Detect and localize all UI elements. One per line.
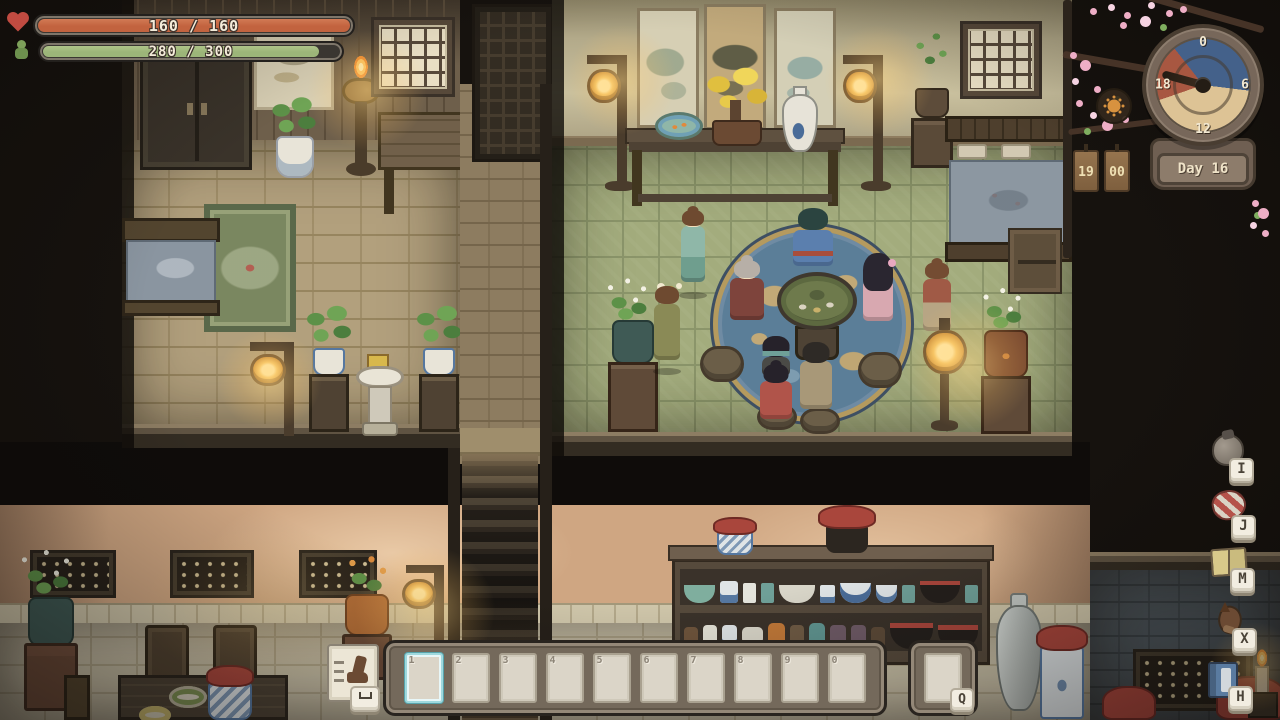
lantern <box>843 69 877 103</box>
plate <box>169 686 207 708</box>
covered-jar[interactable] <box>206 665 254 720</box>
hotbar-slot[interactable]: 4 <box>546 653 584 703</box>
npc-girl[interactable] <box>855 253 901 345</box>
dining-chair[interactable] <box>64 675 90 720</box>
blossoms <box>1070 52 1077 59</box>
journal-key[interactable]: J <box>1231 515 1256 540</box>
stairwell <box>448 0 552 720</box>
dash-key[interactable] <box>350 686 380 712</box>
pottery <box>779 585 815 603</box>
npc-standing[interactable] <box>678 210 708 296</box>
wardrobe[interactable] <box>140 52 252 170</box>
hotbar-slot[interactable]: 5 <box>593 653 631 703</box>
boot-icon <box>345 656 369 686</box>
bonsai <box>688 58 788 154</box>
pottery <box>965 585 978 603</box>
hotbar-slot[interactable]: 6 <box>640 653 678 703</box>
dial-0: 0 <box>1199 35 1207 50</box>
hotbar-slot[interactable]: 7 <box>687 653 725 703</box>
stamina-value: 280 / 300 <box>40 43 342 60</box>
sun-icon <box>1108 100 1121 113</box>
stool[interactable] <box>858 352 902 388</box>
inventory-key[interactable]: I <box>1229 458 1254 483</box>
hotbar: 1 2 3 4 5 6 7 8 9 0 <box>383 640 887 716</box>
pottery <box>820 585 835 603</box>
potted-palm <box>406 296 460 436</box>
pottery <box>902 585 915 603</box>
wall-vent <box>173 553 251 595</box>
wall-lamp <box>398 565 450 649</box>
lantern <box>250 354 286 386</box>
hotbar-slot[interactable]: 8 <box>734 653 772 703</box>
stair-landing <box>460 428 540 456</box>
potted-bamboo <box>262 88 326 180</box>
stool[interactable] <box>700 346 744 382</box>
flower-stand <box>972 282 1038 434</box>
right-room <box>552 0 1072 456</box>
game-screen: 160 / 160 280 / 300 0 6 12 18 Day 16 19 … <box>0 0 1280 720</box>
pottery <box>840 583 871 603</box>
day-counter: Day 16 <box>1157 153 1249 185</box>
minute-tag: 00 <box>1104 150 1130 192</box>
game-clock: 0 6 12 18 <box>1142 24 1264 146</box>
hotbar-slot[interactable]: 9 <box>781 653 819 703</box>
round-table[interactable] <box>777 272 857 330</box>
covered-jar <box>713 517 757 555</box>
npc-standing[interactable] <box>650 286 684 372</box>
lantern-stand <box>841 55 889 193</box>
pottery <box>876 585 898 603</box>
lantern <box>402 579 436 609</box>
hotbar-slot[interactable]: 1 <box>405 653 443 703</box>
time-phase-badge <box>1096 88 1132 124</box>
sprout-icon <box>13 40 29 60</box>
handbook-key[interactable]: H <box>1228 686 1253 711</box>
health-value: 160 / 160 <box>35 16 353 35</box>
hour-tag: 19 <box>1073 150 1099 192</box>
basin-stand <box>352 360 408 438</box>
dial-6: 6 <box>1241 78 1249 93</box>
bed[interactable] <box>122 218 220 316</box>
spacebar-glyph <box>359 692 372 699</box>
dining-table[interactable] <box>118 675 288 720</box>
hotbar-slot[interactable]: 2 <box>452 653 490 703</box>
dial-12: 12 <box>1195 122 1211 137</box>
heart-icon <box>10 15 27 32</box>
quick-slot-key[interactable]: Q <box>950 688 974 712</box>
floor-lantern <box>920 318 972 432</box>
plate <box>139 706 171 720</box>
hotbar-slot[interactable]: 3 <box>499 653 537 703</box>
pottery <box>743 583 756 603</box>
hotbar-slot[interactable]: 0 <box>828 653 866 703</box>
stamina-bar: 280 / 300 <box>38 41 344 62</box>
npc-seated-back[interactable] <box>797 342 835 422</box>
map-key[interactable]: M <box>1230 568 1255 593</box>
lattice-window <box>963 24 1039 96</box>
porcelain-vase[interactable] <box>782 86 818 152</box>
npc-elder[interactable] <box>726 260 768 338</box>
pottery <box>684 585 715 603</box>
health-bar: 160 / 160 <box>33 14 355 37</box>
blossoms <box>1090 8 1097 15</box>
motion-lines <box>334 660 344 682</box>
pottery <box>920 581 960 603</box>
pottery <box>761 583 774 603</box>
lattice-window <box>374 20 452 94</box>
desk[interactable] <box>378 112 460 214</box>
covered-jar <box>818 505 876 553</box>
candle <box>1248 648 1278 720</box>
blossoms <box>1252 200 1259 207</box>
npc-seated-back[interactable] <box>757 364 795 422</box>
left-room <box>122 0 460 448</box>
lantern <box>587 69 621 103</box>
lantern <box>923 330 967 374</box>
covered-jar[interactable] <box>1036 625 1088 720</box>
pottery <box>720 581 738 603</box>
mount-key[interactable]: X <box>1232 628 1257 653</box>
dial-18: 18 <box>1155 78 1171 93</box>
covered-jar <box>1102 686 1156 720</box>
